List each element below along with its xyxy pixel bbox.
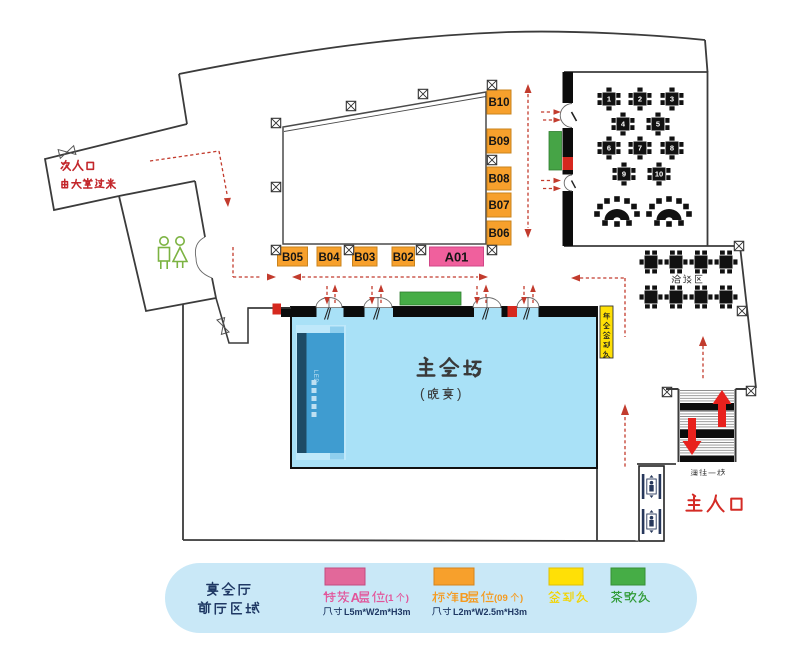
svg-text:B: B (460, 590, 469, 605)
svg-text:1: 1 (607, 95, 611, 104)
svg-text:8: 8 (670, 144, 674, 153)
svg-text:B08: B08 (488, 174, 510, 186)
svg-text:B09: B09 (488, 136, 509, 148)
svg-text:9: 9 (622, 170, 626, 179)
svg-text:B07: B07 (488, 200, 509, 212)
svg-text:2: 2 (638, 95, 642, 104)
svg-text:(09: (09 (494, 593, 508, 604)
svg-text:B03: B03 (354, 252, 375, 264)
svg-text:L2m*W2.5m*H3m: L2m*W2.5m*H3m (453, 607, 527, 617)
svg-text:B02: B02 (393, 252, 414, 264)
svg-text:A01: A01 (445, 250, 469, 265)
svg-text:6: 6 (607, 144, 611, 153)
svg-text:3: 3 (670, 95, 674, 104)
svg-text:B04: B04 (318, 252, 340, 264)
svg-text:(: ( (420, 386, 425, 401)
svg-text:(1: (1 (385, 593, 394, 604)
svg-text:): ) (406, 593, 409, 604)
svg-text:B10: B10 (488, 97, 509, 109)
svg-text:): ) (520, 593, 523, 604)
svg-text:7: 7 (638, 144, 642, 153)
svg-text:): ) (457, 386, 462, 401)
svg-text:10: 10 (655, 170, 663, 179)
svg-text:L5m*W2m*H3m: L5m*W2m*H3m (344, 607, 411, 617)
svg-text:A: A (351, 590, 361, 605)
svg-text:B06: B06 (488, 228, 509, 240)
svg-text:B05: B05 (282, 252, 304, 264)
svg-text:5: 5 (656, 120, 660, 129)
